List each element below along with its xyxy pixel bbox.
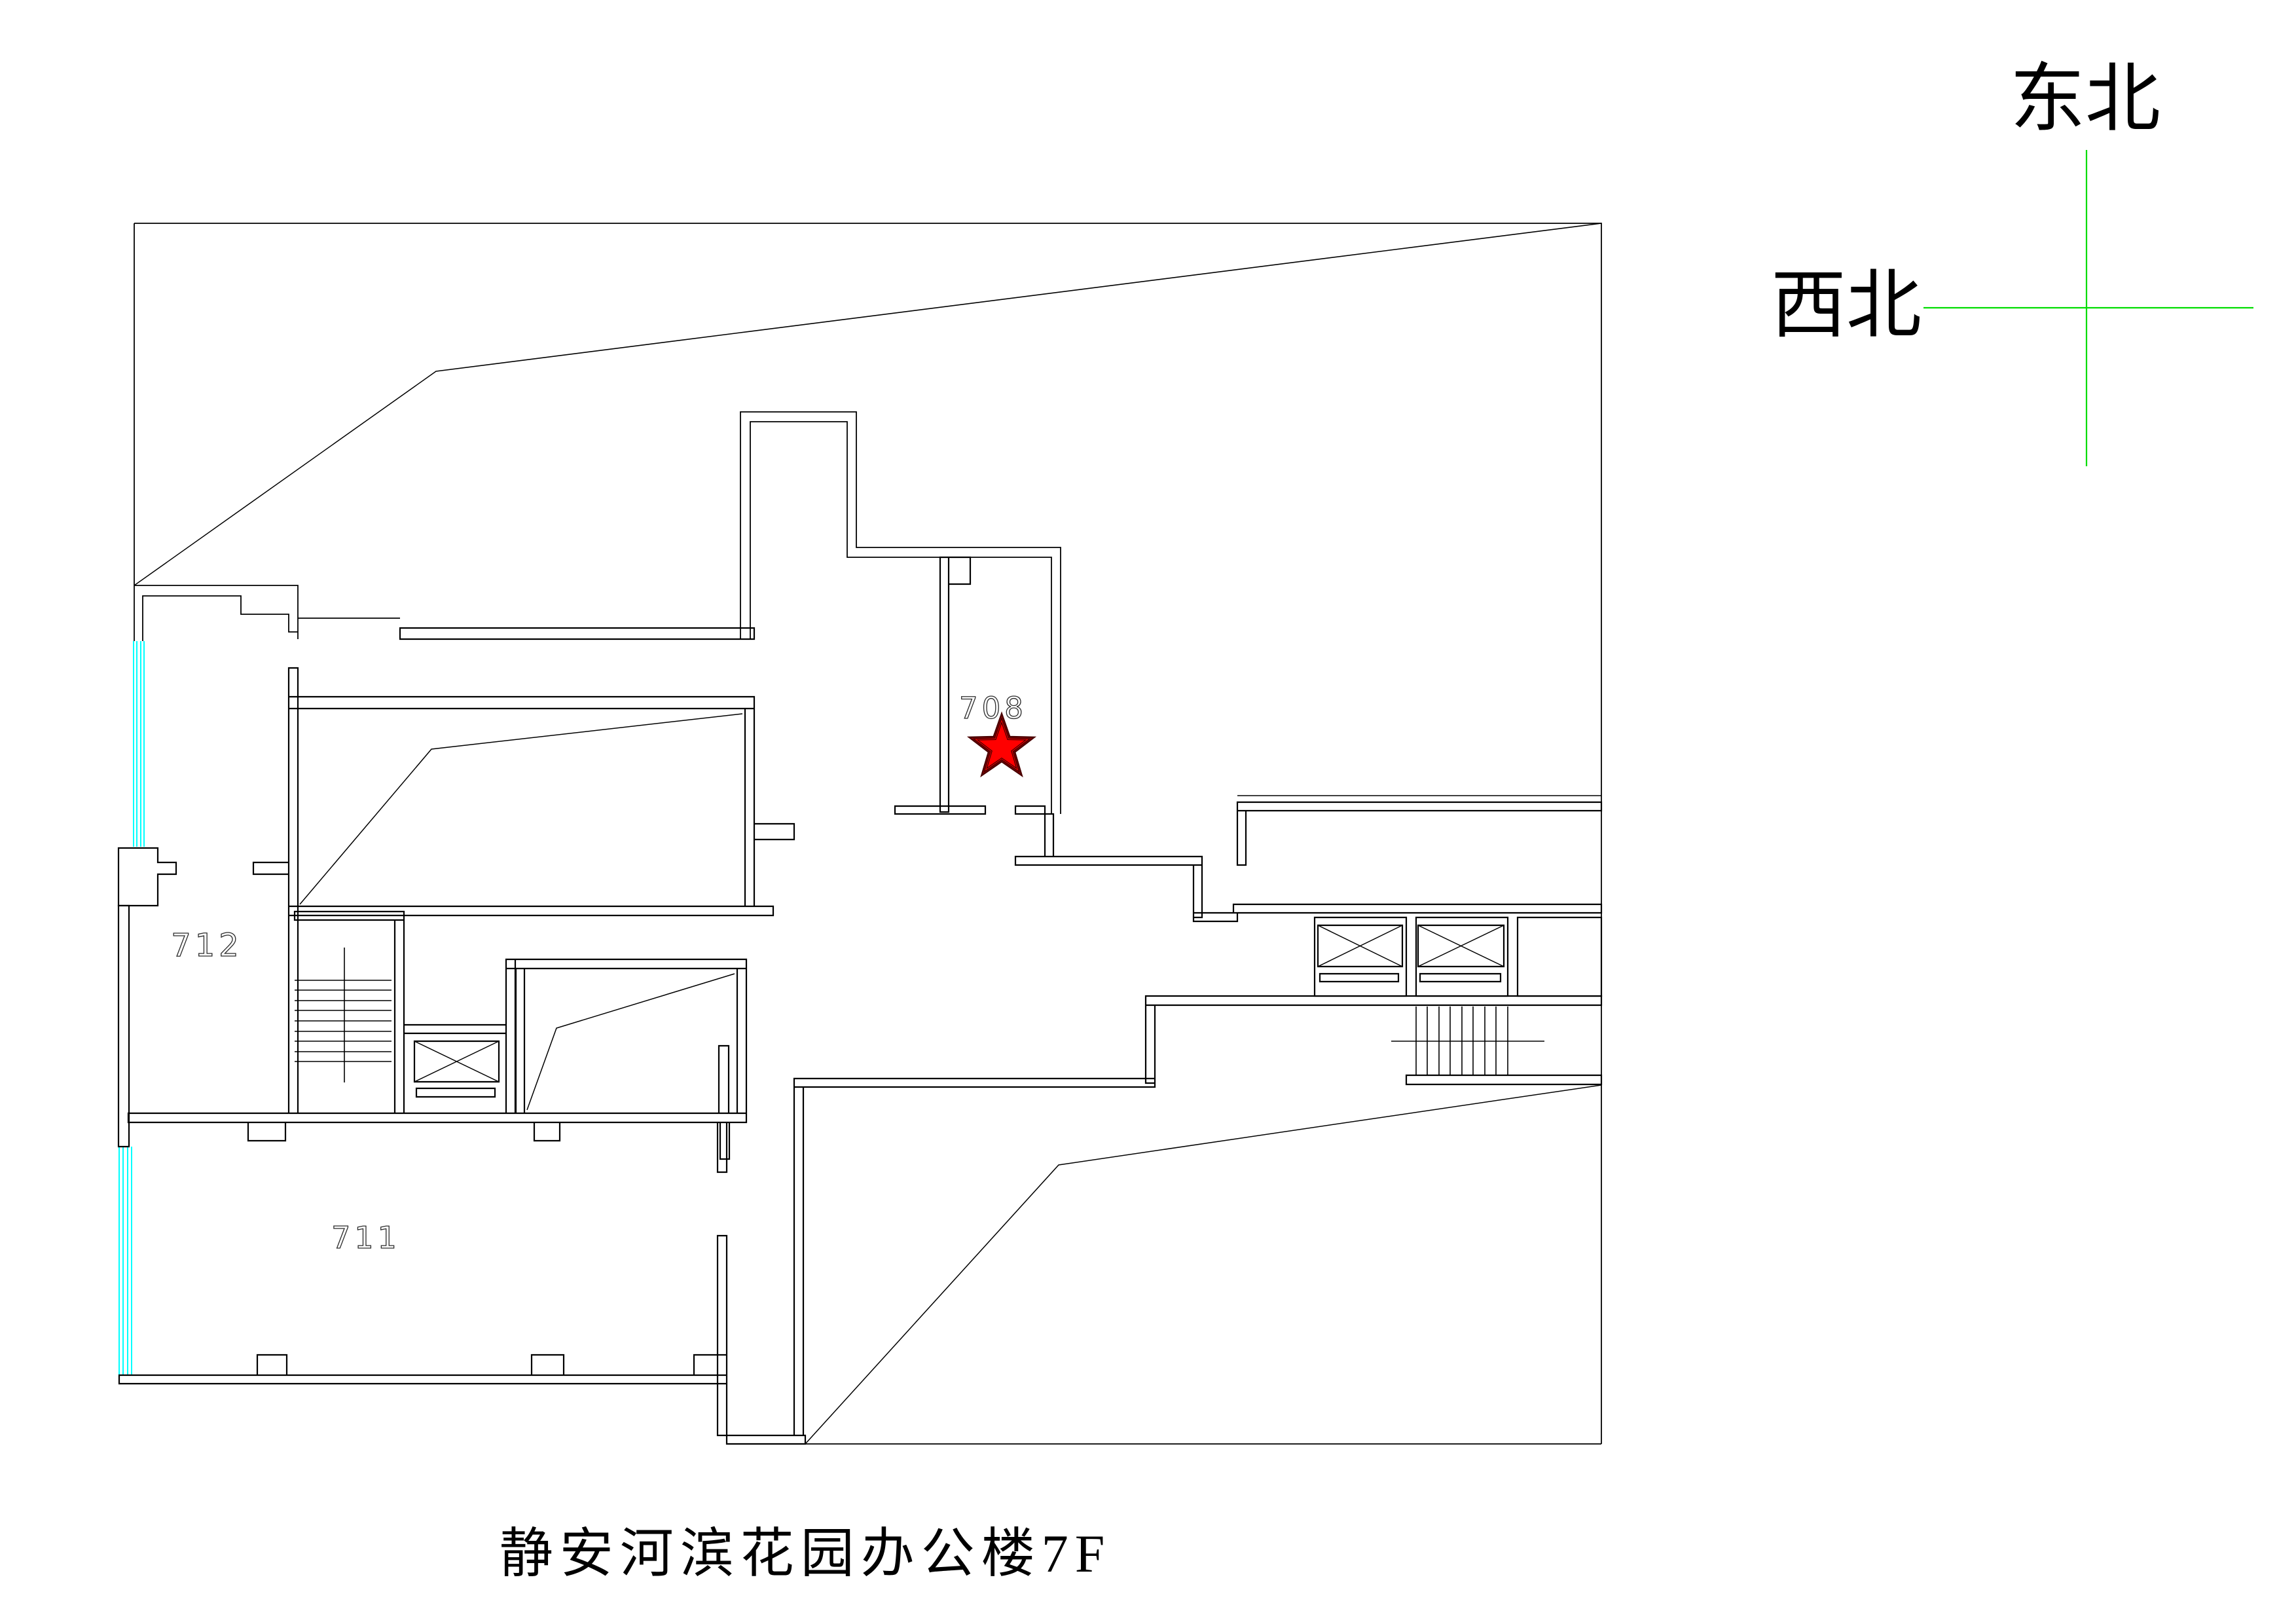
service-room-box xyxy=(1518,917,1601,996)
elevator-shaft-a-sill xyxy=(1320,974,1398,982)
room-labels: 708 712 711 xyxy=(171,691,1027,1255)
room-diagonal-small xyxy=(527,974,735,1110)
stepped-wall-upper-left xyxy=(134,585,400,641)
window-lines-lower-left xyxy=(119,1147,132,1375)
stair-left xyxy=(295,948,392,1082)
window-lines-upper-left xyxy=(134,641,144,847)
stair-left-treads xyxy=(295,980,392,1061)
floor-plan-canvas: 708 712 711 东北 西北 静安河滨花园办公楼7F xyxy=(0,0,2296,1624)
elevator-bank-right xyxy=(1315,917,1601,996)
compass: 东北 西北 xyxy=(1771,58,2253,466)
drawing-title: 静安河滨花园办公楼7F xyxy=(500,1524,1112,1583)
room-label-711: 711 xyxy=(331,1220,401,1255)
left-pier-column xyxy=(118,848,176,906)
elevator-shaft-a-box xyxy=(1315,917,1406,996)
elevator-left xyxy=(414,1041,499,1097)
floor-plan-page: 708 712 711 东北 西北 静安河滨花园办公楼7F xyxy=(0,0,2296,1624)
outer-boundary-lines xyxy=(134,223,1601,1444)
room-label-708: 708 xyxy=(959,691,1027,726)
compass-cross-lines xyxy=(1923,150,2253,466)
elevator-left-sill xyxy=(416,1088,495,1097)
compass-northeast-label: 东北 xyxy=(2010,58,2160,141)
compass-northwest-label: 西北 xyxy=(1771,264,1922,347)
elevator-shaft-b-box xyxy=(1416,917,1508,996)
room-label-712: 712 xyxy=(171,927,243,964)
room-diagonal-large xyxy=(300,714,742,904)
canopy-diagonal-top xyxy=(134,223,1601,585)
terrace-diagonal-bottom xyxy=(805,1085,1601,1444)
elevator-shaft-b-sill xyxy=(1420,974,1501,982)
outer-boundary xyxy=(134,223,1601,1444)
stair-right xyxy=(1391,1006,1544,1075)
